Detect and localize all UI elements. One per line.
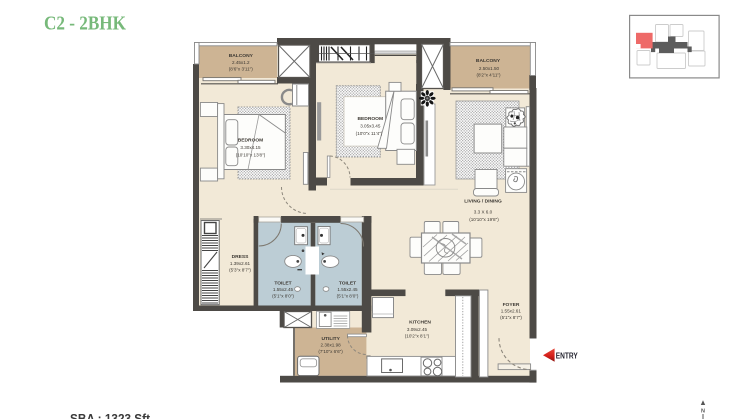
svg-text:(5'3"x 8'7"): (5'3"x 8'7") (229, 267, 251, 272)
svg-text:2.50x1.50: 2.50x1.50 (479, 66, 500, 71)
svg-text:(8'2"x 4'11"): (8'2"x 4'11") (476, 73, 501, 78)
svg-text:UTILITY: UTILITY (321, 336, 340, 342)
svg-text:TOILET: TOILET (274, 281, 291, 287)
svg-text:(5'1"x 8'7"): (5'1"x 8'7") (500, 315, 522, 320)
svg-text:(10'10"x 13'8"): (10'10"x 13'8") (236, 153, 266, 158)
svg-text:BALCONY: BALCONY (229, 53, 254, 59)
svg-text:C2 - 2BHK: C2 - 2BHK (44, 14, 127, 35)
svg-text:BEDROOM: BEDROOM (358, 116, 384, 122)
svg-text:LIVING / DINING: LIVING / DINING (464, 199, 502, 205)
svg-text:SBA : 1323 Sft: SBA : 1323 Sft (70, 411, 151, 419)
svg-text:(5'1"x 8'0"): (5'1"x 8'0") (272, 294, 294, 299)
svg-text:3.3 X 6.0: 3.3 X 6.0 (474, 210, 493, 215)
svg-text:FOYER: FOYER (503, 302, 520, 308)
svg-text:TOILET: TOILET (339, 281, 356, 287)
svg-text:1.55x2.61: 1.55x2.61 (501, 309, 522, 314)
svg-text:1.39x2.61: 1.39x2.61 (230, 261, 251, 266)
svg-text:KITCHEN: KITCHEN (409, 320, 431, 326)
svg-text:(5'1"x 8'0"): (5'1"x 8'0") (337, 294, 359, 299)
svg-text:3.05x3.45: 3.05x3.45 (360, 124, 381, 129)
svg-text:(8'6"x 3'11"): (8'6"x 3'11") (229, 66, 254, 71)
svg-text:1.55x2.45: 1.55x2.45 (273, 287, 294, 292)
svg-text:(7'10"x 6'6"): (7'10"x 6'6") (318, 349, 343, 354)
svg-text:N: N (701, 409, 705, 415)
svg-text:1.55x2.45: 1.55x2.45 (337, 287, 358, 292)
svg-text:BEDROOM: BEDROOM (238, 138, 264, 144)
svg-text:DRESS: DRESS (232, 254, 250, 260)
svg-text:BALCONY: BALCONY (476, 58, 501, 64)
svg-text:2.38x1.98: 2.38x1.98 (321, 343, 342, 348)
svg-text:3.09x2.45: 3.09x2.45 (407, 327, 428, 332)
svg-text:ENTRY: ENTRY (556, 351, 579, 360)
svg-text:(10'0"x 11'4"): (10'0"x 11'4") (356, 131, 383, 136)
svg-text:2.45x1.2: 2.45x1.2 (232, 60, 250, 65)
svg-text:(10'10"x 19'8"): (10'10"x 19'8") (469, 217, 499, 222)
svg-text:3.30x4.15: 3.30x4.15 (240, 145, 261, 150)
svg-text:(10'2"x 8'1"): (10'2"x 8'1") (405, 334, 430, 339)
